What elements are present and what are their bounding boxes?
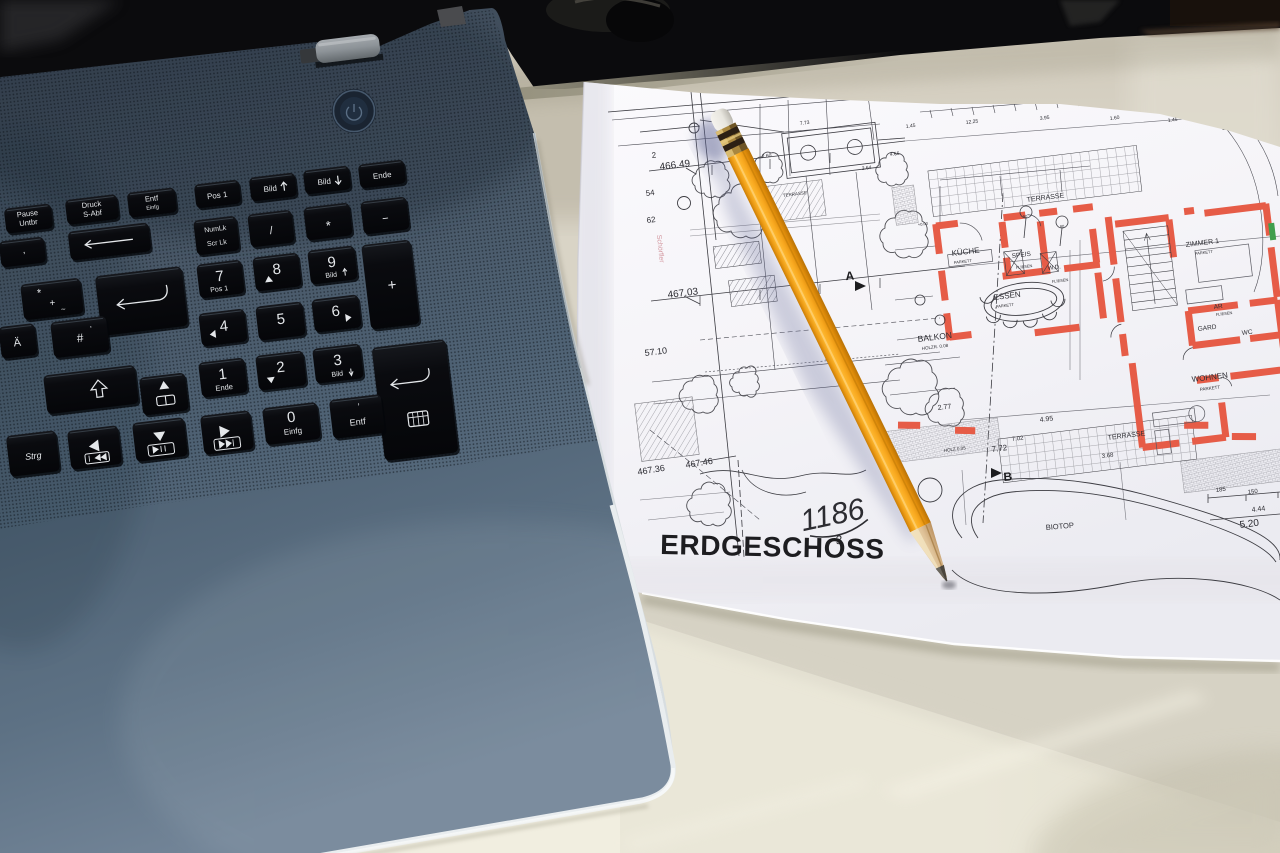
svg-text:Bild: Bild — [325, 272, 338, 280]
svg-text:ERDGESCHOSS: ERDGESCHOSS — [660, 529, 885, 565]
svg-text:Bild: Bild — [317, 177, 331, 188]
svg-text:Entf: Entf — [144, 193, 159, 204]
svg-text:Strg: Strg — [25, 450, 43, 462]
svg-text:2.64: 2.64 — [862, 165, 873, 172]
svg-text:54: 54 — [645, 188, 655, 198]
svg-text:3.95: 3.95 — [1040, 115, 1051, 122]
svg-text:AR: AR — [1213, 303, 1223, 311]
svg-text:2.60: 2.60 — [762, 153, 773, 160]
svg-text:B: B — [1003, 469, 1013, 484]
svg-text:Bild: Bild — [263, 184, 277, 195]
svg-text:Entf: Entf — [349, 416, 367, 428]
svg-text:Bild: Bild — [331, 370, 344, 378]
svg-text:62: 62 — [646, 215, 656, 225]
svg-text:1.60: 1.60 — [1110, 115, 1121, 122]
svg-text:7.73: 7.73 — [800, 120, 811, 127]
svg-text:1.45: 1.45 — [906, 123, 917, 130]
svg-text:WC: WC — [1241, 329, 1253, 337]
svg-text:A: A — [845, 269, 855, 284]
svg-text:4.66: 4.66 — [890, 151, 901, 158]
